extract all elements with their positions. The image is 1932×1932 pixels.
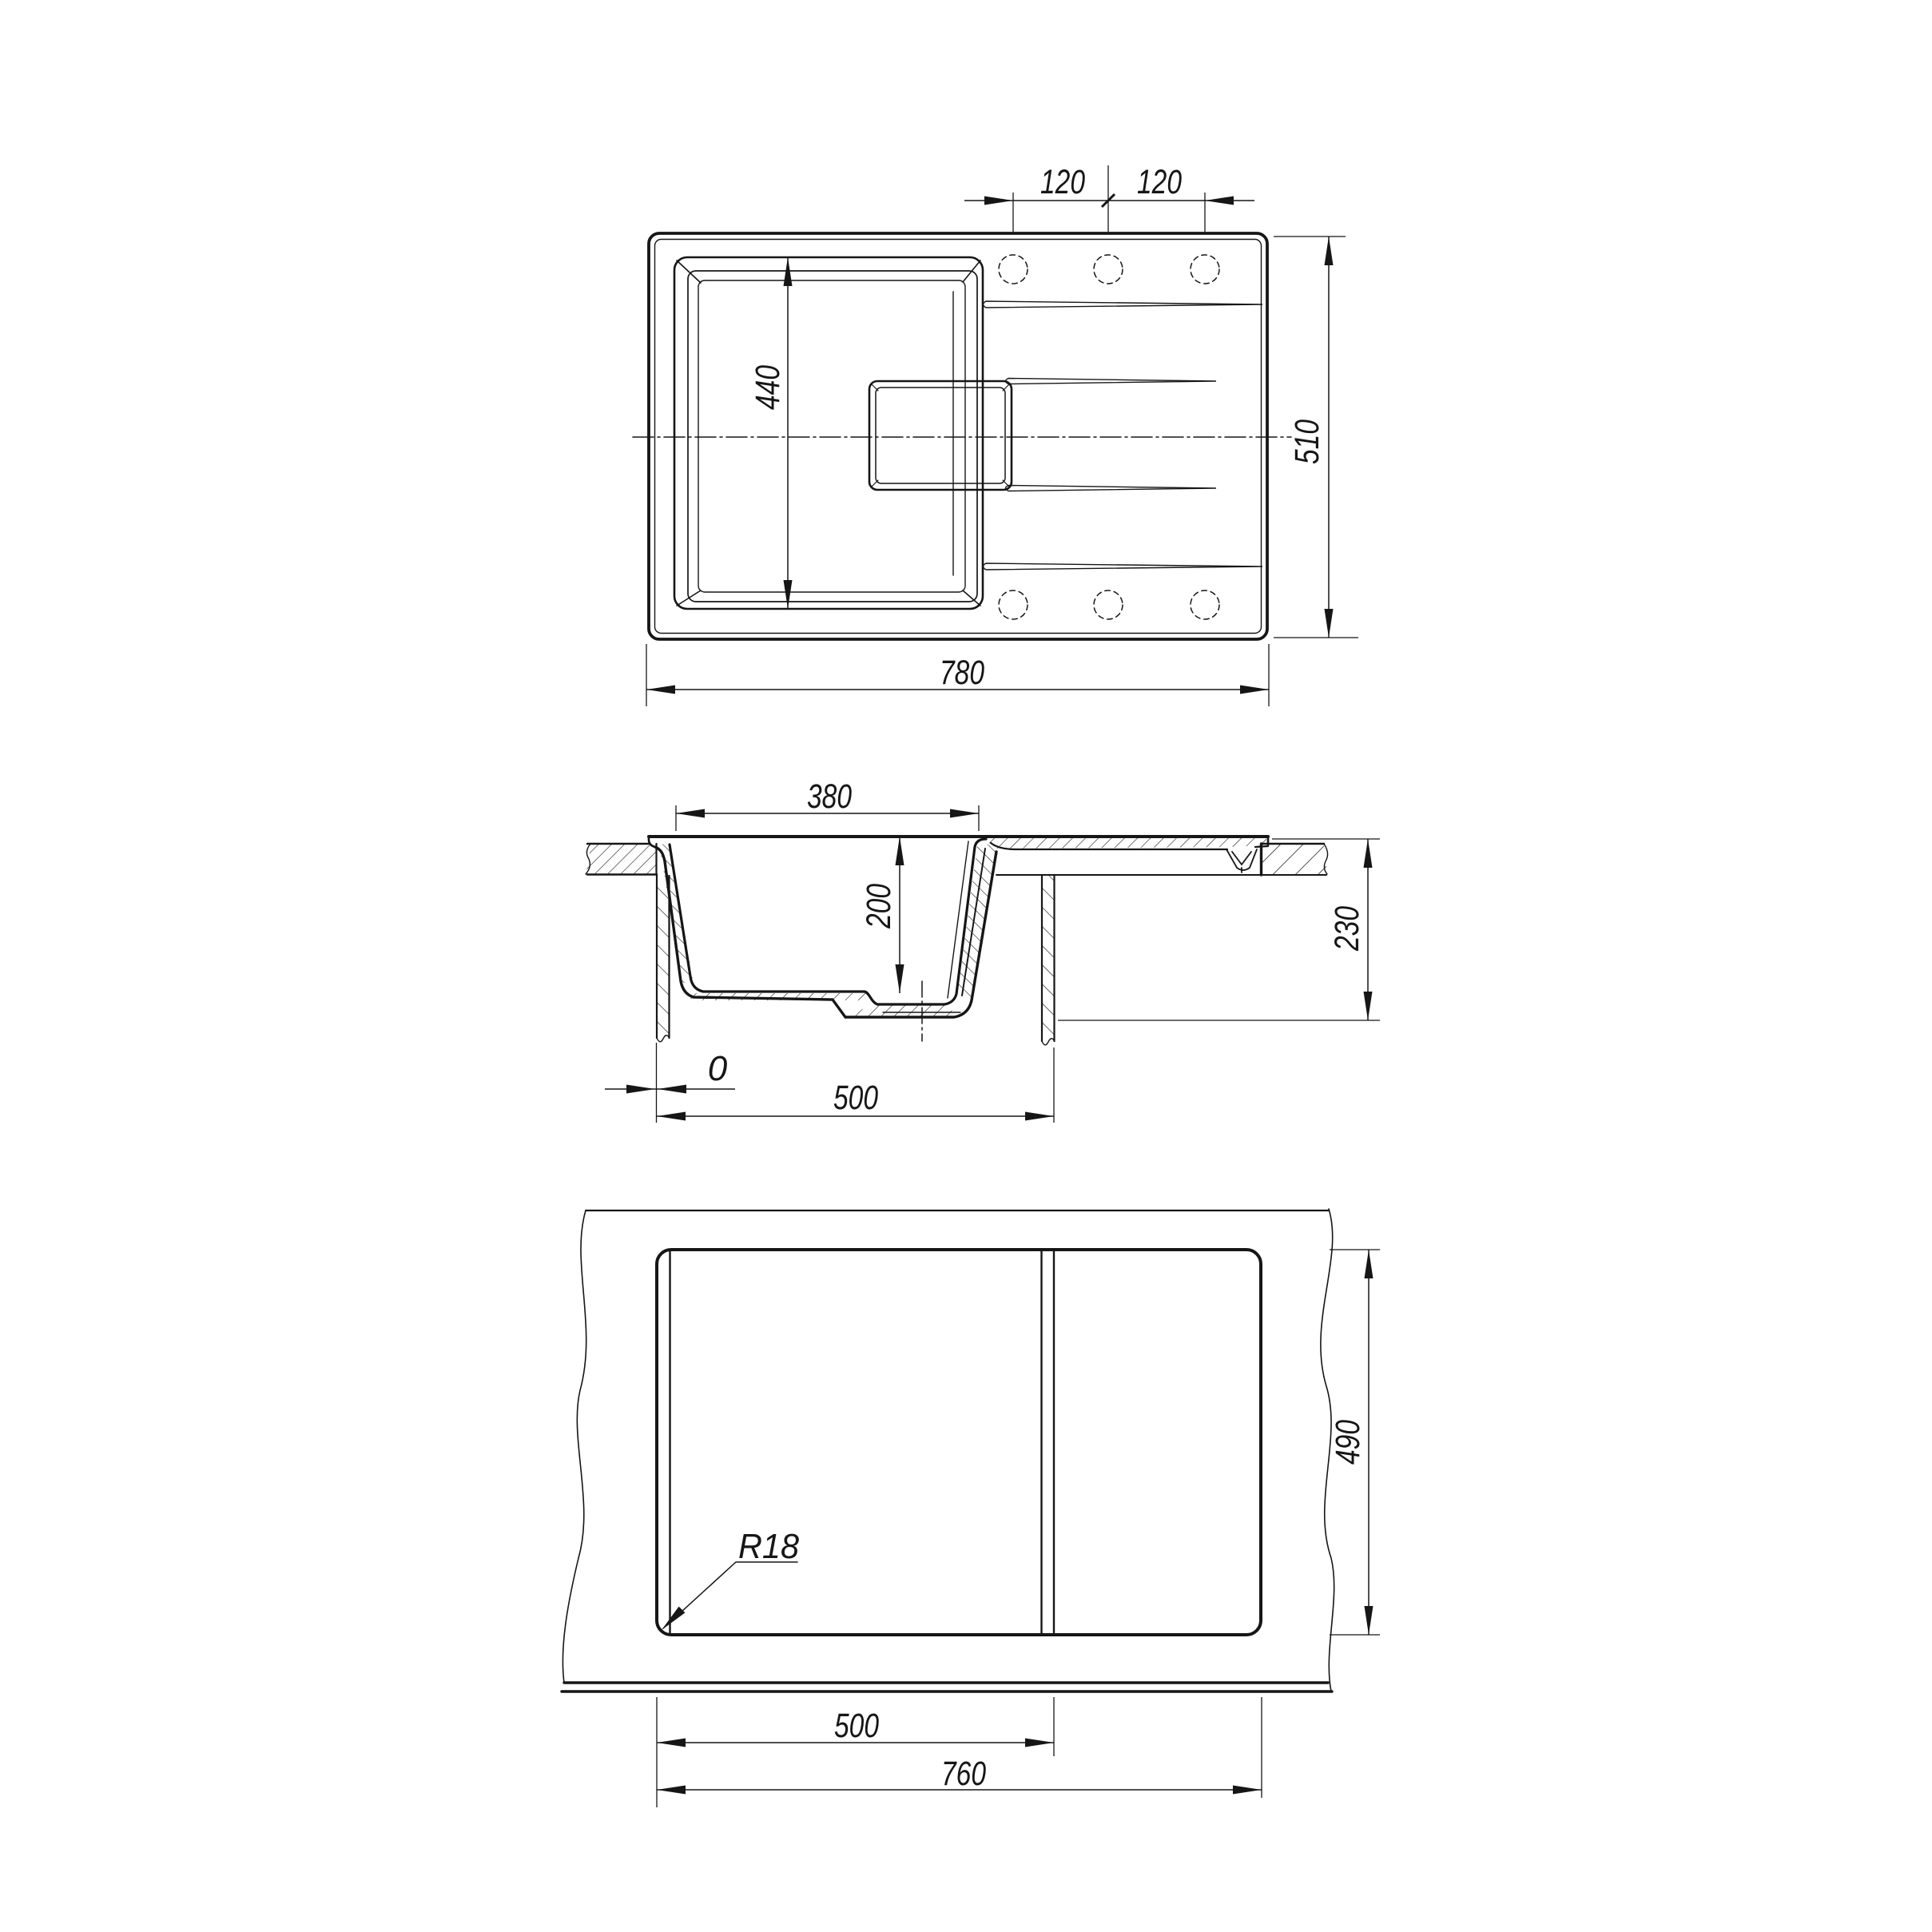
svg-text:380: 380 (807, 777, 852, 816)
svg-text:R18: R18 (738, 1527, 799, 1566)
svg-text:120: 120 (1040, 163, 1085, 201)
svg-text:510: 510 (1288, 419, 1326, 464)
svg-text:230: 230 (1328, 906, 1366, 952)
svg-text:780: 780 (940, 654, 984, 692)
svg-text:500: 500 (833, 1079, 878, 1117)
svg-text:500: 500 (834, 1707, 879, 1745)
svg-text:760: 760 (941, 1755, 986, 1793)
svg-text:200: 200 (860, 884, 898, 929)
svg-text:440: 440 (749, 365, 787, 410)
svg-text:120: 120 (1137, 163, 1182, 201)
svg-text:0: 0 (708, 1049, 728, 1088)
svg-text:490: 490 (1329, 1420, 1367, 1465)
